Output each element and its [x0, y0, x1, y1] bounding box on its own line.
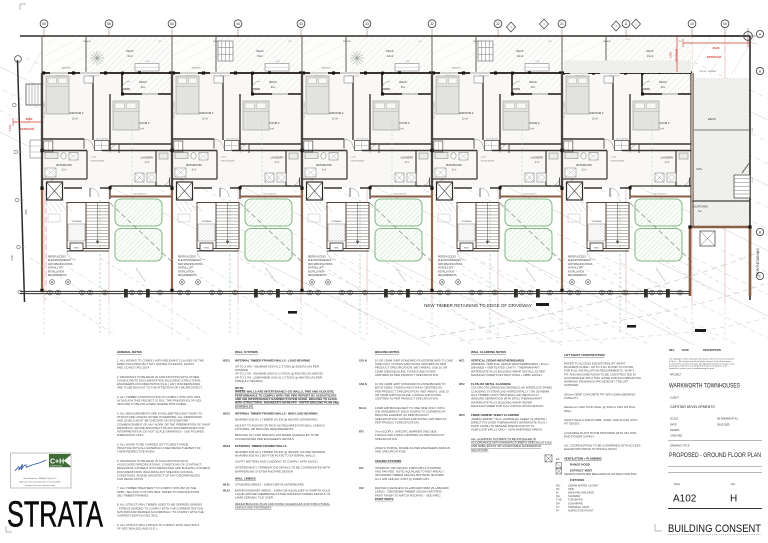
svg-text:+ 23/03: + 23/03: [534, 61, 540, 63]
svg-text:WC3: WC3: [459, 414, 465, 417]
svg-text:(TALK/GARDEN.): (TALK/GARDEN.): [263, 193, 277, 196]
svg-text:CAVITY BATTENS AND CLADDING TO: CAVITY BATTENS AND CLADDING TO COMPLY WI…: [235, 460, 318, 464]
svg-text:5 m²: 5 m²: [582, 168, 587, 171]
svg-text:MANUFACTURER FOR FULL INSTALLA: MANUFACTURER FOR FULL INSTALLATION DETAI…: [471, 404, 543, 408]
svg-text:WR01: WR01: [334, 247, 339, 249]
svg-text:GARDEN: GARDEN: [452, 67, 461, 70]
svg-text:WC2: WC2: [459, 383, 465, 386]
svg-text:(TALK/GARDEN.): (TALK/GARDEN.): [653, 193, 667, 196]
svg-text:MaxiDoors GI26 STUD WALL @ 300: MaxiDoors GI26 STUD WALL @ 300mm CRS ON …: [564, 405, 636, 409]
svg-text:designed structural components: designed structural components only.: [25, 484, 55, 487]
svg-text:VENTILATION + PLUMBING: VENTILATION + PLUMBING: [564, 456, 603, 460]
svg-text:DRAWING TITLE: DRAWING TITLE: [670, 445, 690, 448]
svg-text:DECK: DECK: [126, 49, 133, 53]
svg-text:REQUIREMENTS: REQUIREMENTS: [308, 275, 327, 277]
svg-text:H1.2 GIB CEILING JOIST @ 400MM: H1.2 GIB CEILING JOIST @ 400MM CRS: [375, 477, 429, 481]
svg-text:GS1-N: GS1-N: [359, 359, 367, 362]
svg-text:INTERNAL TIMBER FRAMED WALLS -: INTERNAL TIMBER FRAMED WALLS - LOAD BEAR…: [235, 358, 311, 362]
svg-text:BATHROOM: BATHROOM: [576, 163, 592, 167]
svg-text:TUB: TUB: [556, 498, 562, 502]
svg-text:12 m²: 12 m²: [72, 118, 78, 121]
svg-text:H: H: [730, 494, 737, 505]
svg-text:EX: EX: [556, 457, 560, 461]
svg-text:LAUNDRY: LAUNDRY: [531, 156, 544, 160]
svg-text:3m²: 3m²: [401, 86, 405, 89]
svg-text:Approval of these drawings rel: Approval of these drawings relate to the…: [20, 481, 61, 484]
svg-text:ELEVATORS/DESIGN: ELEVATORS/DESIGN: [438, 259, 461, 262]
svg-text:DECK: DECK: [659, 80, 667, 84]
svg-text:WR01: WR01: [594, 247, 599, 249]
svg-text:Sheet: Sheet: [674, 483, 681, 486]
svg-text:DECK: DECK: [516, 49, 523, 53]
svg-text:8,340: 8,340: [752, 127, 754, 133]
svg-text:C02: C02: [359, 487, 364, 490]
svg-text:LIFT: LIFT: [50, 180, 55, 182]
svg-text:EP1: EP1: [359, 431, 364, 434]
svg-text:50: 50: [42, 22, 46, 26]
svg-text:WR01: WR01: [74, 247, 79, 249]
svg-text:3m²: 3m²: [271, 86, 275, 89]
svg-text:REFER ACCESS: REFER ACCESS: [48, 256, 66, 259]
svg-text:90x45MM SG8 H1.2 TIMBER STUDS: 90x45MM SG8 H1.2 TIMBER STUDS @ 600CRS (…: [235, 417, 317, 421]
svg-text:2000: 2000: [26, 117, 33, 121]
svg-text:SHOWER: SHOWER: [568, 494, 580, 498]
svg-text:SK: SK: [556, 487, 560, 491]
svg-text:AND SPECIFICATIONS: AND SPECIFICATIONS: [178, 263, 203, 266]
svg-text:WL02: WL02: [223, 489, 230, 492]
svg-text:A102: A102: [673, 494, 697, 505]
svg-text:DECK: DECK: [708, 117, 716, 121]
svg-text:+ 2,470: + 2,470: [220, 157, 226, 159]
svg-text:LIFT SHAFT CONSTRUCTION: LIFT SHAFT CONSTRUCTION: [564, 353, 605, 357]
svg-text:REFER ACCESS: REFER ACCESS: [308, 256, 326, 259]
svg-text:12 m²: 12 m²: [202, 118, 208, 121]
svg-text:CAPACITY: CAPACITY: [564, 396, 578, 400]
svg-text:FENCE: FENCE: [343, 41, 351, 43]
svg-text:(TALK/GARDEN.): (TALK/GARDEN.): [133, 193, 147, 196]
svg-text:C+H: C+H: [50, 459, 64, 466]
svg-text:REQUIREMENTS: REQUIREMENTS: [48, 275, 67, 277]
svg-text:CAPSTAR DEVELOPMENTS: CAPSTAR DEVELOPMENTS: [670, 405, 715, 409]
svg-text:+ 2,470: + 2,470: [90, 157, 96, 159]
svg-text:23.0: 23.0: [418, 41, 422, 43]
svg-text:BATHROOM: BATHROOM: [56, 163, 72, 167]
svg-text:PROJECT: PROJECT: [670, 374, 682, 377]
svg-text:BUILDING CONSENT: BUILDING CONSENT: [668, 523, 761, 535]
svg-text:CENTRES AS PER PRODUCT SPECIFI: CENTRES AS PER PRODUCT SPECIFICATION.: [375, 373, 439, 377]
svg-text:EXTERNAL TIMBER FRAMED WALLS: EXTERNAL TIMBER FRAMED WALLS: [235, 444, 287, 448]
svg-text:4,120: 4,120: [752, 177, 754, 183]
svg-text:(FOR ALL LIFT: (FOR ALL LIFT: [178, 267, 194, 270]
svg-text:43: 43: [299, 22, 303, 26]
svg-text:DESCRIPTION: DESCRIPTION: [703, 348, 721, 352]
svg-text:2790: 2790: [10, 255, 14, 261]
svg-text:54: 54: [170, 22, 174, 26]
svg-text:FENCE: FENCE: [603, 41, 611, 43]
svg-text:GATE: GATE: [696, 168, 703, 171]
svg-text:PER PRODUCT SPECIFICATION.: PER PRODUCT SPECIFICATION.: [375, 420, 420, 424]
svg-text:+ 23/03: + 23/03: [274, 61, 280, 63]
svg-text:AND SPECIFICATIONS: AND SPECIFICATIONS: [438, 263, 463, 266]
svg-text:MANUFACTURER'S INSTRUCTIONS +: MANUFACTURER'S INSTRUCTIONS + NZBC E2/AS…: [471, 373, 542, 377]
svg-text:SINK: SINK: [568, 487, 574, 491]
svg-text:FOR RESOLUTION.: FOR RESOLUTION.: [117, 477, 144, 481]
svg-text:0.0 m: 0.0 m: [752, 43, 757, 45]
svg-text:C01: C01: [359, 467, 364, 470]
svg-text:(FOR ALL LIFT: (FOR ALL LIFT: [568, 267, 584, 270]
svg-text:(FOR ALL LIFT: (FOR ALL LIFT: [438, 267, 454, 270]
svg-text:INSPECTION POINT: INSPECTION POINT: [568, 508, 594, 512]
svg-text:LAUNDRY: LAUNDRY: [661, 156, 674, 160]
svg-text:COURTYARD: COURTYARD: [692, 206, 708, 209]
svg-text:WASHING MACHINE: WASHING MACHINE: [568, 490, 594, 494]
svg-text:BATHROOM: BATHROOM: [446, 163, 462, 167]
svg-text:10: 10: [690, 22, 694, 26]
svg-text:DECK: DECK: [529, 80, 537, 84]
svg-text:SCALE: SCALE: [670, 418, 679, 421]
svg-text:* SMOKE ALARM: * SMOKE ALARM: [610, 160, 625, 163]
svg-text:2 m²: 2 m²: [535, 161, 540, 164]
svg-text:DRAWN: DRAWN: [670, 429, 680, 432]
svg-text:IP: IP: [556, 508, 559, 512]
svg-text:3450: 3450: [24, 209, 28, 215]
svg-text:FIXTURES, OR BRACING REQUIREME: FIXTURES, OR BRACING REQUIREMENTS.: [235, 427, 294, 431]
svg-text:STORAGE: STORAGE: [331, 220, 342, 223]
svg-text:SCHEDULES.: SCHEDULES.: [235, 404, 254, 408]
svg-text:ELEVATORS/DESIGN: ELEVATORS/DESIGN: [48, 259, 71, 262]
svg-text:AND SPECIFICATIONS: AND SPECIFICATIONS: [308, 263, 333, 266]
svg-text:ELEVATORS/DESIGN: ELEVATORS/DESIGN: [308, 259, 331, 262]
svg-text:SETBACK: SETBACK: [20, 127, 36, 131]
svg-text:GS2-N: GS2-N: [359, 383, 367, 386]
svg-text:ELEVATORS/DESIGN: ELEVATORS/DESIGN: [178, 259, 201, 262]
svg-text:FENCE: FENCE: [83, 41, 91, 43]
svg-text:BARRIERLINE SYSTEM AND FIRE DE: BARRIERLINE SYSTEM AND FIRE DESIGN: [235, 469, 293, 473]
svg-text:4229 ARE TO BE FOLLOWED WHERE: 4229 ARE TO BE FOLLOWED WHERE APPLICABLE…: [117, 402, 187, 406]
svg-text:22: 22: [496, 22, 500, 26]
svg-text:2 m²: 2 m²: [275, 161, 280, 164]
svg-text:2 m²: 2 m²: [145, 161, 150, 164]
svg-text:STRATA: STRATA: [7, 494, 103, 535]
svg-text:STANDARD AREAS - 10MM GIB® PLA: STANDARD AREAS - 10MM GIB® PLASTERBOARD: [235, 482, 304, 486]
svg-text:150MM WATER CLOSET: 150MM WATER CLOSET: [568, 483, 599, 487]
svg-text:REFER ACCESS: REFER ACCESS: [178, 256, 196, 259]
svg-text:WR01: WR01: [464, 247, 469, 249]
svg-text:DECK: DECK: [646, 49, 653, 53]
svg-text:1990: 1990: [669, 52, 673, 58]
svg-text:23.0: 23.0: [678, 41, 682, 43]
svg-text:+ 2,470: + 2,470: [350, 157, 356, 159]
svg-text:3m²: 3m²: [531, 86, 535, 89]
svg-text:AS SHOWN AT A1: AS SHOWN AT A1: [717, 418, 738, 421]
svg-text:21.0: 21.0: [626, 39, 630, 41]
svg-text:OF NZS 3604:2011 AND (S.E.).: OF NZS 3604:2011 AND (S.E.).: [117, 526, 158, 530]
svg-text:5 m²: 5 m²: [322, 168, 327, 171]
svg-text:INTERNAL TIMBER FRAMED WALLS -: INTERNAL TIMBER FRAMED WALLS - NON LOAD …: [235, 411, 318, 415]
svg-text:SPECIFICATION: SPECIFICATION: [375, 437, 397, 441]
svg-text:2 m²: 2 m²: [665, 161, 670, 164]
svg-text:13m2: 13m2: [647, 54, 654, 58]
svg-text:DP: DP: [556, 501, 560, 505]
svg-text:WC: WC: [556, 483, 561, 487]
svg-text:WALL CLADDING NOTES: WALL CLADDING NOTES: [471, 350, 506, 354]
svg-text:* SMOKE ALARM: * SMOKE ALARM: [220, 160, 235, 163]
svg-text:W2G1: W2G1: [223, 359, 231, 362]
svg-text:DATE: DATE: [682, 348, 689, 352]
svg-text:3m²: 3m²: [661, 86, 665, 89]
svg-text:TV: TV: [556, 505, 560, 509]
svg-text:12 m²: 12 m²: [332, 118, 338, 121]
svg-text:DOWNPIPE: DOWNPIPE: [568, 501, 583, 505]
svg-text:(TALK/GARDEN.): (TALK/GARDEN.): [393, 193, 407, 196]
svg-text:5 m²: 5 m²: [452, 168, 457, 171]
svg-text:32: 32: [430, 22, 434, 26]
svg-text:WARKWORTH TOWNHOUSES: WARKWORTH TOWNHOUSES: [669, 383, 740, 390]
svg-text:REV: REV: [669, 348, 675, 352]
svg-text:AND SPECIFICATIONS: AND SPECIFICATIONS: [48, 263, 73, 266]
svg-text:* SMOKE ALARM: * SMOKE ALARM: [90, 160, 105, 163]
svg-text:GARDEN: GARDEN: [62, 67, 71, 70]
svg-text:STORAGE: STORAGE: [461, 220, 472, 223]
svg-text:PIT EDGES: PIT EDGES: [564, 422, 579, 426]
svg-text:(FLP10 - 1/8 POST: (FLP10 - 1/8 POST: [699, 71, 717, 73]
svg-text:LIFT: LIFT: [570, 180, 575, 182]
svg-text:90x45MM SG8 H3.2 BOTTOM PLATE: 90x45MM SG8 H3.2 BOTTOM PLATE TO EXTERNA…: [235, 454, 316, 458]
svg-text:WALL: WALL: [564, 409, 572, 413]
svg-text:10MM CERAMIC TILE OVER.: 10MM CERAMIC TILE OVER.: [235, 496, 274, 500]
svg-text:LAUNDRY: LAUNDRY: [141, 156, 154, 160]
svg-text:33: 33: [365, 22, 369, 26]
svg-text:REFER ACCESS: REFER ACCESS: [438, 256, 456, 259]
svg-text:29.05.2025: 29.05.2025: [717, 424, 730, 427]
svg-text:DECK: DECK: [139, 80, 147, 84]
svg-text:ELEVATORS PRIOR TO INSTALLATIO: ELEVATORS PRIOR TO INSTALLATION.: [564, 447, 617, 451]
svg-text:11: 11: [624, 22, 628, 26]
svg-text:BATHROOM: BATHROOM: [316, 163, 332, 167]
svg-text:TERMINAL VENT: TERMINAL VENT: [568, 505, 590, 509]
svg-text:BATHROOM: BATHROOM: [186, 163, 202, 167]
svg-text:NEW TIMBER RETAINING TO EDGE O: NEW TIMBER RETAINING TO EDGE OF DRIVEWAY: [424, 303, 532, 308]
svg-text:23.0: 23.0: [548, 41, 552, 43]
svg-text:AND SPECIFICATIONS: AND SPECIFICATIONS: [375, 450, 406, 454]
svg-text:GARDEN: GARDEN: [192, 67, 201, 70]
svg-text:INSTALLATION: INSTALLATION: [308, 270, 324, 273]
svg-text:COORDINATED PER ENGINEER'S DET: COORDINATED PER ENGINEER'S DETAILS: [235, 437, 294, 441]
svg-text:+ 23/03: + 23/03: [404, 61, 410, 63]
svg-text:reported to architect prior to: reported to architect prior to implement…: [669, 367, 715, 370]
svg-text:23.0: 23.0: [288, 41, 292, 43]
svg-text:FIXTURES: FIXTURES: [570, 478, 584, 482]
svg-text:THEIR RESPECTIVE KINDS.: THEIR RESPECTIVE KINDS.: [117, 450, 155, 454]
svg-text:55: 55: [107, 22, 111, 26]
svg-text:3m²: 3m²: [141, 86, 145, 89]
svg-text:3020: 3020: [713, 46, 720, 50]
svg-text:6m2: 6m2: [127, 54, 133, 58]
svg-text:NEW RETAINING: NEW RETAINING: [756, 248, 760, 276]
svg-text:4,350: 4,350: [8, 124, 12, 131]
svg-text:CLIENT: CLIENT: [670, 397, 679, 400]
svg-text:SUPPLIER.: SUPPLIER.: [564, 383, 579, 387]
svg-text:21: 21: [560, 22, 564, 26]
svg-text:LIFT: LIFT: [310, 180, 315, 182]
svg-text:DECK: DECK: [386, 49, 393, 53]
svg-text:+ 2,470: + 2,470: [610, 157, 616, 159]
svg-text:TUB (BATH): TUB (BATH): [568, 498, 583, 502]
svg-text:3&D TIMBER FRAMING.: 3&D TIMBER FRAMING.: [117, 494, 149, 498]
svg-text:(FOR ALL LIFT: (FOR ALL LIFT: [48, 267, 64, 270]
svg-text:LININGS AND FASTENERS: LININGS AND FASTENERS: [235, 505, 271, 509]
svg-text:PROPOSED - GROUND FLOOR PLAN: PROPOSED - GROUND FLOOR PLAN: [669, 452, 761, 459]
svg-text:SETBACK: SETBACK: [707, 55, 723, 59]
svg-text:STORAGE: STORAGE: [71, 220, 82, 223]
svg-text:INSTALLATION: INSTALLATION: [438, 270, 454, 273]
svg-text:ROD POWER SUPPLY: ROD POWER SUPPLY: [564, 434, 594, 438]
svg-text:12m2: 12m2: [517, 54, 524, 58]
svg-text:5 m²: 5 m²: [62, 168, 67, 171]
svg-text:INSTALLATION: INSTALLATION: [178, 270, 194, 273]
svg-text:WC1: WC1: [459, 359, 465, 362]
svg-text:6m2: 6m2: [257, 54, 263, 58]
svg-text:+ 23/03: + 23/03: [144, 61, 150, 63]
svg-text:12 m²: 12 m²: [592, 118, 598, 121]
svg-text:WALL LININGS: WALL LININGS: [235, 476, 256, 480]
svg-text:DECK: DECK: [399, 80, 407, 84]
svg-text:* SMOKE ALARM: * SMOKE ALARM: [480, 160, 495, 163]
svg-text:SETBACK: SETBACK: [675, 48, 679, 61]
svg-text:INSTALLATION: INSTALLATION: [568, 270, 584, 273]
svg-text:DECK: DECK: [269, 80, 277, 84]
svg-text:Active Kingsbury - 456bg6E 27E: Active Kingsbury - 456bg6E 27Eig (5) t17: [24, 477, 57, 480]
svg-text:CENTRES AS PER PRODUCT SPECIFI: CENTRES AS PER PRODUCT SPECIFICATION.: [375, 397, 439, 401]
svg-text:12m2: 12m2: [387, 54, 394, 58]
svg-text:BRACING NOTES: BRACING NOTES: [375, 350, 399, 354]
svg-text:WR01: WR01: [204, 247, 209, 249]
svg-text:TABLE 8.2 NZS3604): TABLE 8.2 NZS3604): [235, 379, 263, 383]
svg-text:LAUNDRY: LAUNDRY: [401, 156, 414, 160]
svg-text:CONSTRUCTION: CONSTRUCTION: [50, 465, 62, 467]
svg-text:ARE TO BE BOUGHT TO THE ATTENT: ARE TO BE BOUGHT TO THE ATTENTION OF THE…: [117, 386, 203, 390]
svg-text:STORAGE: STORAGE: [591, 220, 602, 223]
svg-text:44: 44: [236, 22, 240, 26]
svg-text:DIMENSIONS ONLY.: DIMENSIONS ONLY.: [117, 433, 144, 437]
svg-text:AND CCANZ CP01:2014.: AND CCANZ CP01:2014.: [117, 366, 150, 370]
svg-text:SOLUTIONS.: SOLUTIONS.: [471, 448, 489, 452]
svg-text:B: B: [759, 230, 761, 234]
svg-text:* SMOKE ALARM: * SMOKE ALARM: [350, 160, 365, 163]
svg-text:REQUIREMENTS: REQUIREMENTS: [438, 275, 457, 277]
svg-text:RANGE HOOD: RANGE HOOD: [570, 462, 590, 466]
svg-text:GARDEN: GARDEN: [322, 67, 331, 70]
svg-text:AND SPECIFICATIONS: AND SPECIFICATIONS: [568, 263, 593, 266]
svg-text:CHECKED: CHECKED: [670, 435, 682, 438]
svg-text:LIFT: LIFT: [180, 180, 185, 182]
svg-text:LAUNDRY: LAUNDRY: [271, 156, 284, 160]
svg-text:WL01: WL01: [223, 483, 230, 486]
svg-text:2 m²: 2 m²: [405, 161, 410, 164]
svg-text:CURRENT EDITION NZS 3622.: CURRENT EDITION NZS 3622.: [117, 514, 158, 518]
svg-text:DATE: DATE: [670, 424, 677, 427]
svg-text:STORAGE: STORAGE: [201, 220, 212, 223]
svg-text:W5G1: W5G1: [223, 412, 231, 415]
svg-text:CEILING MOUNTED MECHANICAL EXT: CEILING MOUNTED MECHANICAL EXTRACTION FA…: [564, 472, 637, 476]
svg-text:(TALK/GARDEN.): (TALK/GARDEN.): [523, 193, 537, 196]
svg-text:23.0: 23.0: [158, 41, 162, 43]
svg-text:+ 2,470: + 2,470: [480, 157, 486, 159]
svg-text:GENERAL NOTES: GENERAL NOTES: [117, 350, 142, 354]
svg-text:LIFT: LIFT: [440, 180, 445, 182]
svg-text:12 m²: 12 m²: [462, 118, 468, 121]
svg-text:5 m²: 5 m²: [192, 168, 197, 171]
svg-text:WALL SYSTEMS: WALL SYSTEMS: [235, 350, 258, 354]
svg-text:(FOR ALL LIFT: (FOR ALL LIFT: [308, 267, 324, 270]
svg-text:00: 00: [723, 22, 727, 26]
svg-text:PAINT WHITE: PAINT WHITE: [375, 497, 394, 501]
svg-text:SUBFLOOR WALLS ONLY - NON-HABI: SUBFLOOR WALLS ONLY - NON-HABITABLE AREA…: [471, 428, 542, 432]
svg-text:REFER ACCESS: REFER ACCESS: [568, 256, 586, 259]
svg-text:9m²: 9m²: [698, 210, 702, 213]
svg-text:DECK: DECK: [256, 49, 263, 53]
svg-text:SH: SH: [556, 494, 560, 498]
svg-text:CEILING SYSTEMS: CEILING SYSTEMS: [375, 459, 401, 463]
svg-text:REQUIREMENTS: REQUIREMENTS: [568, 275, 587, 277]
svg-text:REQUIREMENTS: REQUIREMENTS: [178, 275, 197, 277]
svg-text:BL1-H: BL1-H: [359, 407, 367, 410]
svg-text:ELEVATORS/DESIGN: ELEVATORS/DESIGN: [568, 259, 591, 262]
svg-text:W6G3: W6G3: [223, 445, 231, 448]
